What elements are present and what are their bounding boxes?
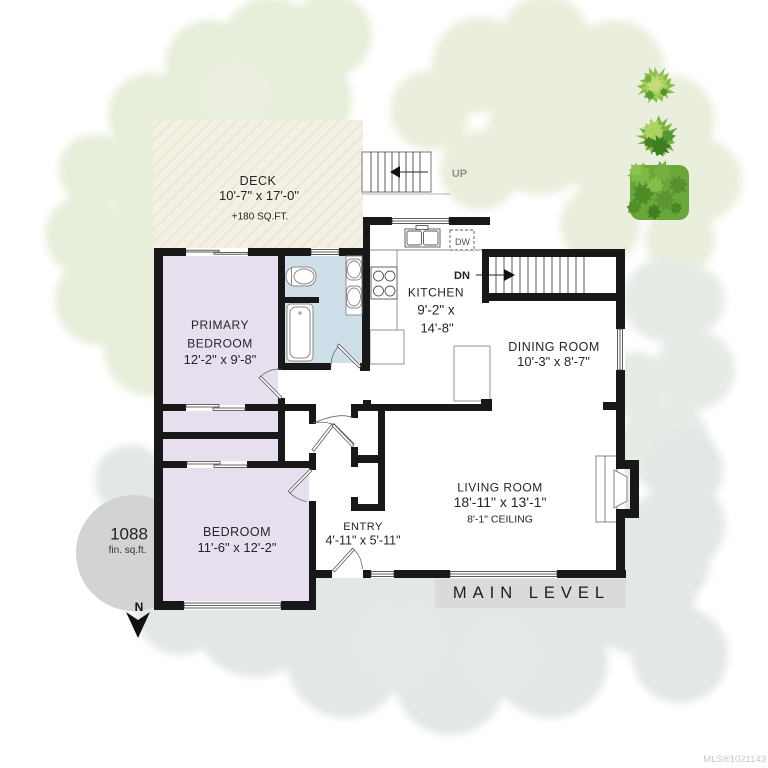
svg-text:LIVING ROOM: LIVING ROOM xyxy=(457,481,543,495)
svg-text:1088: 1088 xyxy=(110,525,148,544)
svg-text:12'-2" x 9'-8": 12'-2" x 9'-8" xyxy=(184,352,257,367)
svg-text:BEDROOM: BEDROOM xyxy=(203,525,271,539)
svg-text:PRIMARY: PRIMARY xyxy=(191,318,249,332)
svg-text:DECK: DECK xyxy=(240,174,277,188)
svg-text:18'-11" x 13'-1": 18'-11" x 13'-1" xyxy=(454,494,547,510)
svg-text:11'-6" x 12'-2": 11'-6" x 12'-2" xyxy=(198,540,277,555)
svg-text:DN: DN xyxy=(454,270,470,282)
svg-text:9'-2" x: 9'-2" x xyxy=(417,303,455,318)
svg-text:fin. sq.ft.: fin. sq.ft. xyxy=(109,545,147,556)
svg-text:MAIN LEVEL: MAIN LEVEL xyxy=(453,584,610,602)
svg-text:ENTRY: ENTRY xyxy=(343,521,383,533)
svg-text:N: N xyxy=(135,600,144,614)
svg-text:10'-3" x 8'-7": 10'-3" x 8'-7" xyxy=(517,354,590,369)
svg-text:UP: UP xyxy=(452,168,467,180)
svg-text:MLS®1021143: MLS®1021143 xyxy=(703,754,766,765)
svg-text:8'-1" CEILING: 8'-1" CEILING xyxy=(467,514,533,526)
svg-text:14'-8": 14'-8" xyxy=(420,321,454,336)
svg-text:BEDROOM: BEDROOM xyxy=(187,337,253,351)
svg-text:DW: DW xyxy=(455,237,470,247)
svg-text:10'-7" x 17'-0": 10'-7" x 17'-0" xyxy=(219,188,299,203)
svg-text:DINING ROOM: DINING ROOM xyxy=(508,340,600,354)
svg-text:+180 SQ.FT.: +180 SQ.FT. xyxy=(232,212,288,223)
svg-text:KITCHEN: KITCHEN xyxy=(408,286,464,300)
svg-text:4'-11" x 5'-11": 4'-11" x 5'-11" xyxy=(325,534,400,548)
